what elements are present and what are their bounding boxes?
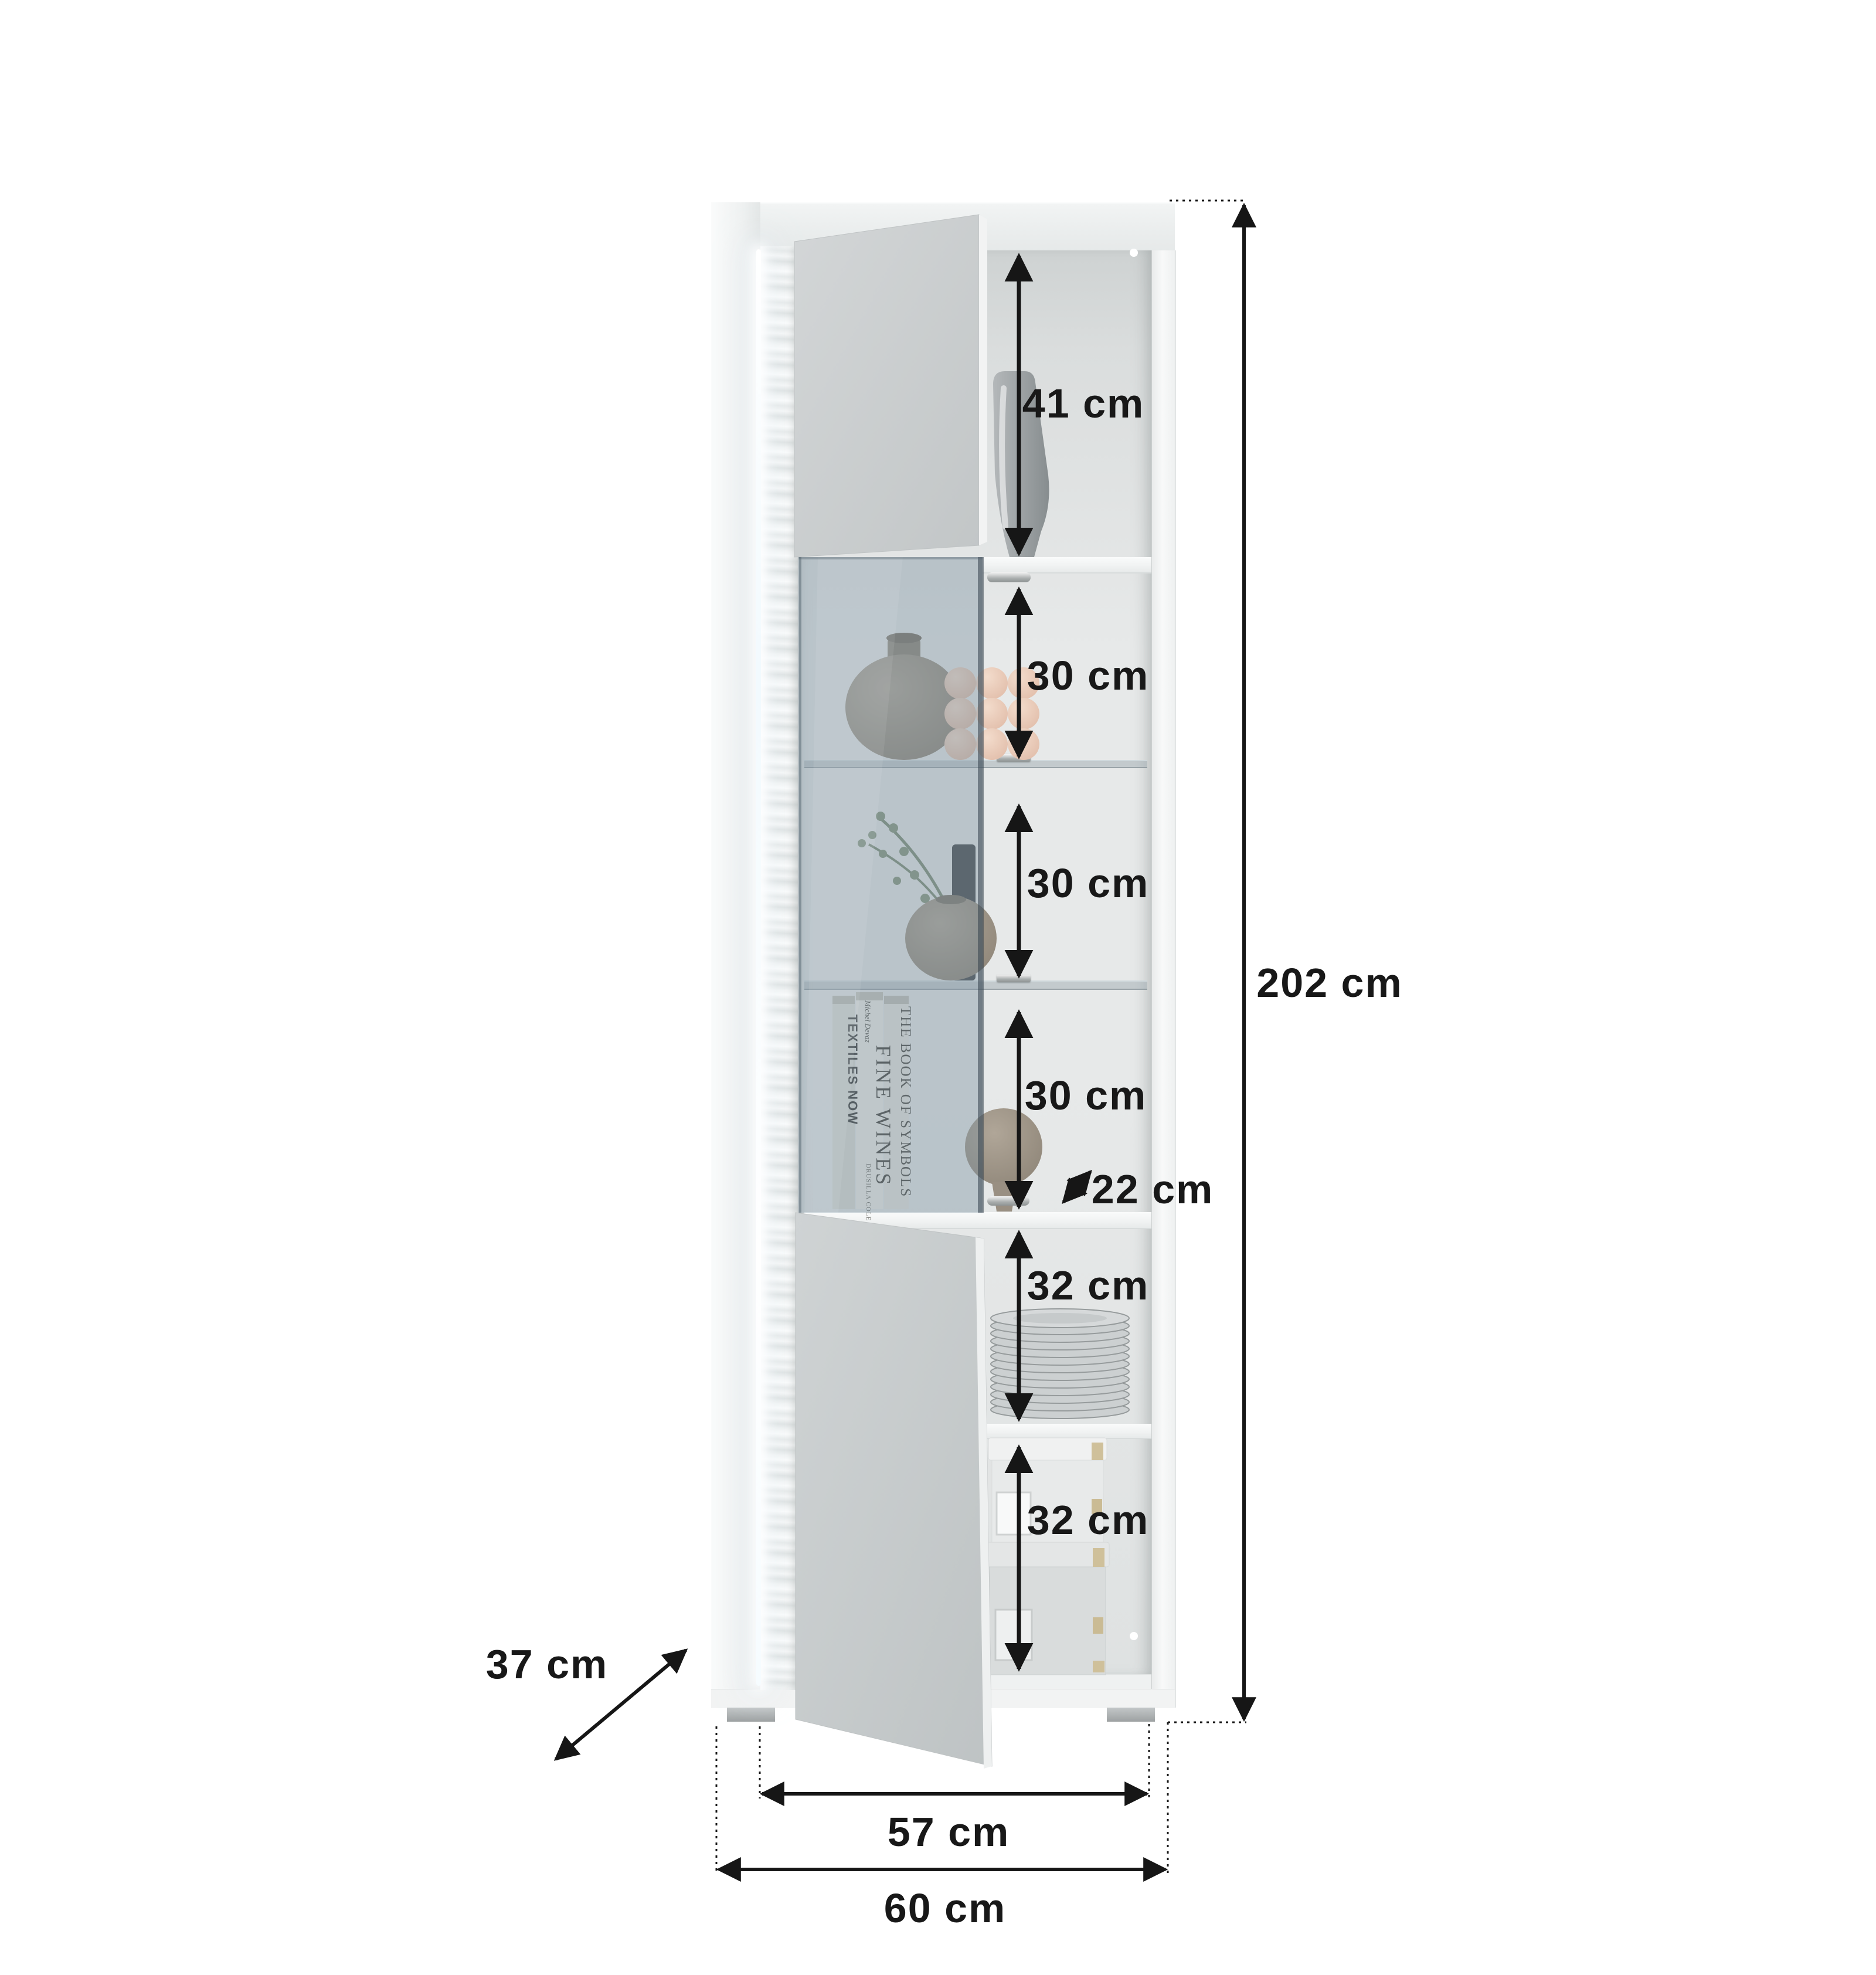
glass-door-hinge-top: [987, 572, 1031, 582]
dim-label-30a: 30 cm: [1027, 652, 1149, 699]
dim-label-height: 202 cm: [1256, 959, 1402, 1006]
dim-label-22: 22 cm: [1092, 1166, 1214, 1213]
decor-plates-stack: [991, 1309, 1129, 1419]
dim-label-inner-width: 57 cm: [888, 1808, 1010, 1855]
dim-label-30b: 30 cm: [1027, 860, 1149, 907]
led-spot-bottom: [1130, 1632, 1138, 1640]
top-door: [794, 215, 987, 557]
dim-label-depth: 37 cm: [486, 1641, 608, 1688]
dim-label-outer-width: 60 cm: [884, 1885, 1006, 1932]
lower-door: [796, 1213, 992, 1769]
dim-label-30c: 30 cm: [1025, 1072, 1147, 1119]
dim-label-32a: 32 cm: [1027, 1262, 1149, 1309]
scene-overlay: TEXTILES NOW Michel Devaz FINE WINES DRU…: [0, 0, 1876, 1975]
decor-storage-boxes: [986, 1438, 1109, 1675]
dim-label-32b: 32 cm: [1027, 1496, 1149, 1543]
dim-line-22: [1063, 1172, 1090, 1202]
glass-door-hinge-bottom: [987, 1196, 1029, 1206]
led-spot-top: [1130, 249, 1138, 257]
glass-door: [798, 557, 984, 1213]
dim-label-41: 41 cm: [1022, 380, 1144, 427]
